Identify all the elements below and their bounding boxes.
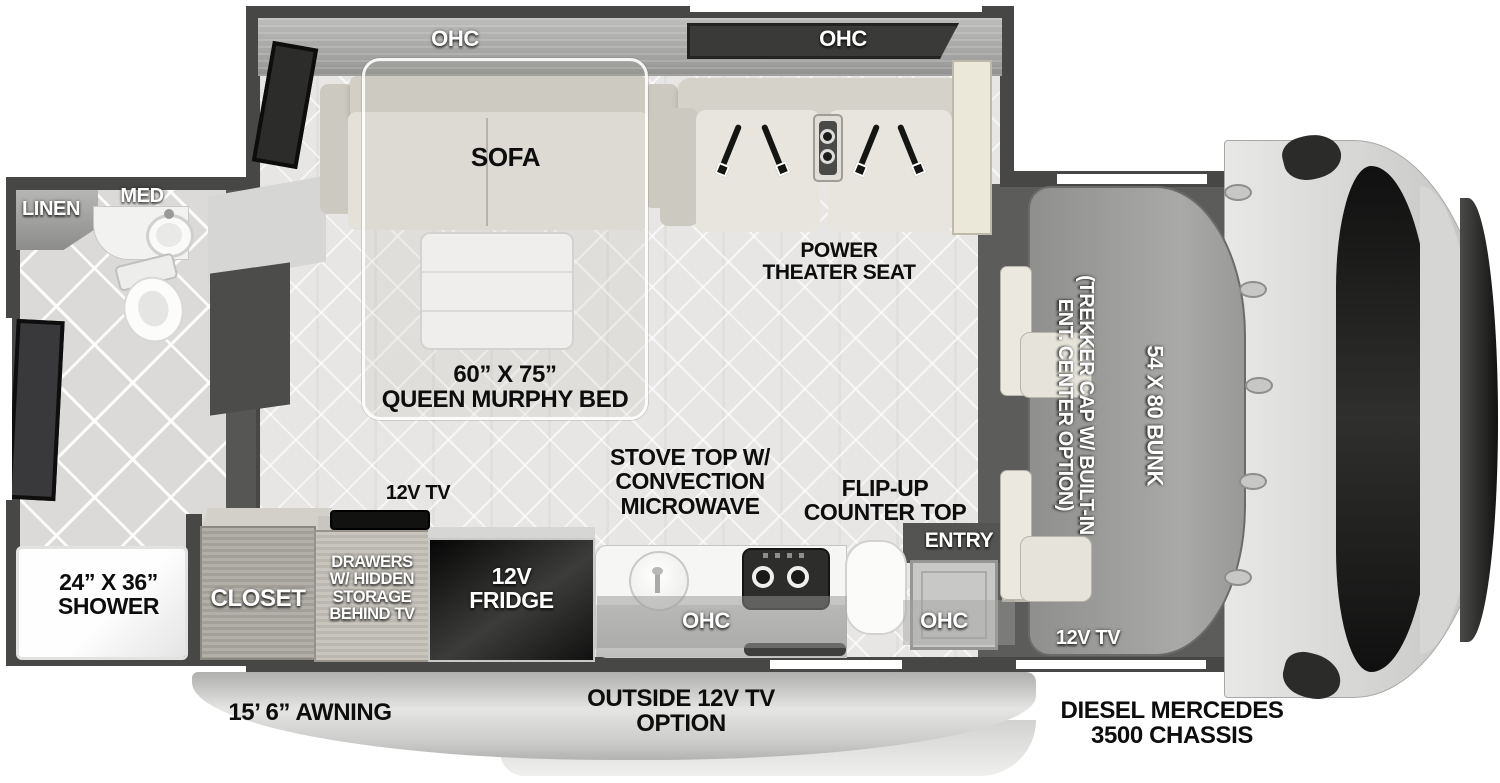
wardrobe-cabinet-front [210,262,290,415]
bunk-label: 54 X 80 BUNK [1143,268,1166,564]
stove-label: STOVE TOP W/CONVECTIONMICROWAVE [580,445,800,518]
bunk-tuft-icon [1224,184,1252,201]
cup-holder-icon [820,129,835,144]
bunk-tuft-icon [1239,473,1267,490]
tv-panel [330,510,430,530]
theater-seat-armrest [660,108,698,226]
fridge-label: 12VFRIDGE [430,564,593,613]
window [7,319,64,501]
ohc-label: OHC [888,609,1000,632]
window [2,318,12,500]
burner-icon [752,566,774,588]
linen-label: LINEN [8,199,94,220]
bunk-tuft-icon [1224,569,1252,586]
kitchen-tv-label: 12V TV [356,483,480,504]
theater-seat-cushion [828,110,952,232]
trekker-cap-label: (TREKKER CAP W/ BUILT-INENT. CENTER OPTI… [1048,195,1096,615]
faucet-icon [655,573,660,593]
theater-seat-label: POWERTHEATER SEAT [756,240,922,285]
pantry-cabinet [952,60,992,235]
bunk-tv-label: 12V TV [1038,628,1138,649]
outside-tv-label: OUTSIDE 12V TVOPTION [558,686,804,737]
stove-controls [763,553,809,558]
wall-right [1000,6,1014,184]
ohc-label: OHC [390,27,520,50]
awning-label: 15’ 6” AWNING [198,700,422,725]
windshield [1336,166,1432,672]
bunk-tuft-icon [1245,377,1273,394]
flip-up-counter-label: FLIP-UPCOUNTER TOP [793,476,977,525]
ohc-label: OHC [650,609,762,632]
faucet-icon [164,209,174,219]
cup-holder-icon [820,149,835,164]
med-cabinet-label: MED [110,186,174,207]
window [690,3,982,12]
entry-label: ENTRY [903,530,1015,552]
closet-label: CLOSET [198,586,318,611]
chassis-label: DIESEL MERCEDES3500 CHASSIS [1040,698,1304,749]
window [770,660,902,669]
murphy-bed-mattress [420,232,574,350]
window [1057,174,1207,184]
bunk-tuft-icon [1239,281,1267,298]
bathroom-sink [146,214,194,258]
sofa-label: SOFA [428,144,583,172]
ohc-label: OHC [778,27,908,50]
rv-floorplan: OHC OHC SOFA POWERTHEATER SEAT 60” X 75”… [0,0,1500,783]
drawers-label: DRAWERSW/ HIDDENSTORAGEBEHIND TV [316,554,428,624]
shower-label: 24” X 36”SHOWER [26,570,191,619]
burner-icon [787,566,809,588]
window [1016,660,1206,669]
front-bumper [1460,198,1498,642]
murphy-bed-label: 60” X 75”QUEEN MURPHY BED [360,362,650,413]
